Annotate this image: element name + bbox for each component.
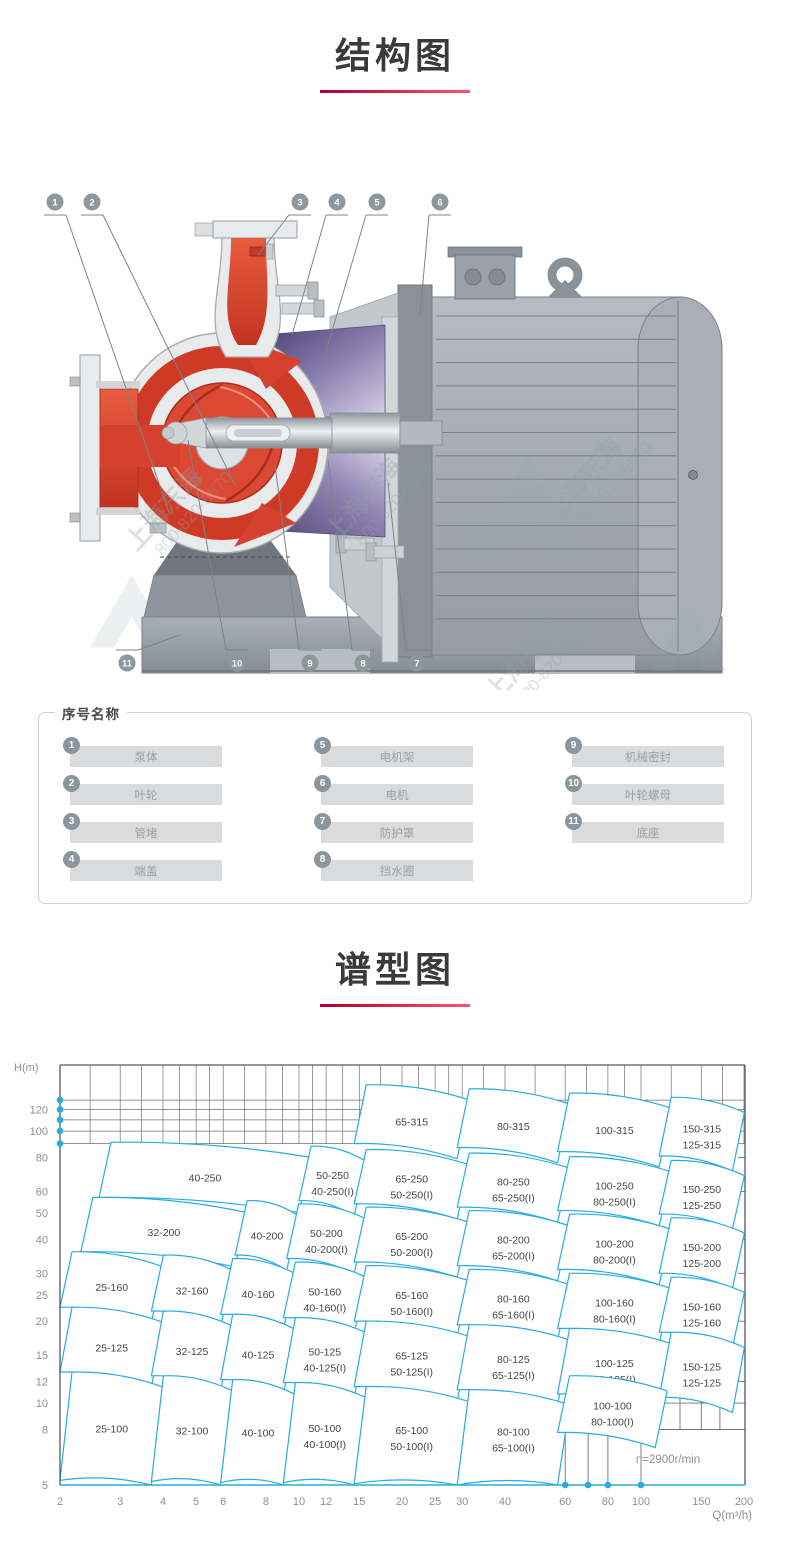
structure-title: 结构图 <box>0 34 790 77</box>
pump-model-label: 100-125 <box>595 1358 634 1370</box>
pump-model-label: 65-160 <box>395 1290 428 1302</box>
part-item: 1泵体 <box>63 737 225 767</box>
spectrum-title: 谱型图 <box>0 948 790 991</box>
parts-column: 5电机架6电机7防护罩8挡水圈 <box>314 737 476 889</box>
part-item: 11底座 <box>565 813 727 843</box>
pump-model-label: 100-160 <box>595 1298 634 1310</box>
pump-model-label: 65-200(I) <box>492 1251 535 1263</box>
axis-dot <box>57 1117 64 1124</box>
part-item: 3管堵 <box>63 813 225 843</box>
pump-model-label: 80-250(I) <box>593 1197 636 1209</box>
y-tick-label: 120 <box>30 1105 48 1117</box>
pump-model-label: 65-100 <box>395 1425 428 1437</box>
parts-legend-title: 序号名称 <box>55 703 127 723</box>
y-tick-label: 30 <box>36 1269 48 1281</box>
part-item: 5电机架 <box>314 737 476 767</box>
pump-model-label: 40-125(I) <box>303 1363 346 1375</box>
pump-model-label: 50-200 <box>310 1228 343 1240</box>
y-tick-label: 15 <box>36 1351 48 1363</box>
spectrum-section-header: 谱型图 <box>0 948 790 1007</box>
x-tick-label: 5 <box>193 1496 199 1508</box>
y-tick-label: 5 <box>42 1480 48 1492</box>
callout-number: 5 <box>374 198 380 209</box>
terminal-box <box>455 255 515 299</box>
part-name-label: 机械密封 <box>572 746 724 767</box>
pump-model-label: 50-100(I) <box>390 1441 433 1453</box>
part-name-label: 叶轮螺母 <box>572 784 724 805</box>
pump-model-label: 125-125 <box>683 1378 722 1390</box>
axis-dot <box>605 1482 612 1489</box>
parts-grid: 1泵体2叶轮3管堵4端盖5电机架6电机7防护罩8挡水圈9机械密封10叶轮螺母11… <box>63 737 727 889</box>
part-name-label: 端盖 <box>70 860 222 881</box>
part-name-label: 底座 <box>572 822 724 843</box>
pump-model-label: 125-315 <box>683 1140 722 1152</box>
speed-annotation: n=2900r/min <box>636 1454 700 1466</box>
pump-model-label: 50-125(I) <box>390 1367 433 1379</box>
chart-regions: 65-31580-315100-315150-315125-31540-2505… <box>60 1085 744 1485</box>
pump-model-label: 65-100(I) <box>492 1443 535 1455</box>
pump-model-label: 40-200(I) <box>305 1244 348 1256</box>
callout-number: 8 <box>360 659 365 670</box>
pump-model-label: 40-160 <box>242 1289 275 1301</box>
pump-model-label: 40-100(I) <box>303 1439 346 1451</box>
callout-number: 6 <box>437 198 442 209</box>
pump-model-label: 50-160(I) <box>390 1306 433 1318</box>
x-tick-label: 10 <box>293 1496 305 1508</box>
pump-model-label: 65-250 <box>395 1174 428 1186</box>
pump-model-label: 150-160 <box>683 1302 722 1314</box>
axis-dot <box>638 1482 645 1489</box>
pump-model-label: 80-125 <box>497 1354 530 1366</box>
part-name-label: 电机 <box>321 784 473 805</box>
x-tick-label: 20 <box>396 1496 408 1508</box>
pump-model-label: 50-250 <box>316 1170 349 1182</box>
pump-model-label: 150-200 <box>683 1242 722 1254</box>
pump-model-label: 150-125 <box>683 1362 722 1374</box>
pump-model-label: 80-100(I) <box>591 1417 634 1429</box>
x-tick-label: 30 <box>456 1496 468 1508</box>
pump-model-label: 65-160(I) <box>492 1310 535 1322</box>
part-item: 2叶轮 <box>63 775 225 805</box>
x-tick-label: 200 <box>735 1496 753 1508</box>
y-tick-label: 50 <box>36 1208 48 1220</box>
pump-model-label: 80-160 <box>497 1294 530 1306</box>
part-item: 9机械密封 <box>565 737 727 767</box>
pump-model-label: 100-250 <box>595 1181 634 1193</box>
x-tick-label: 150 <box>692 1496 710 1508</box>
pump-model-label: 25-125 <box>95 1343 128 1355</box>
callout-number: 3 <box>297 198 302 209</box>
pump-model-label: 50-125 <box>308 1347 341 1359</box>
pump-model-label: 80-100 <box>497 1427 530 1439</box>
title-underline <box>320 90 470 93</box>
pump-model-label: 40-250(I) <box>311 1186 354 1198</box>
y-tick-label: 25 <box>36 1290 48 1302</box>
callout-number: 10 <box>232 659 243 670</box>
part-item: 8挡水圈 <box>314 851 476 881</box>
product-page: 结构图 <box>0 0 790 1545</box>
pump-model-label: 65-200 <box>395 1232 428 1244</box>
pump-model-label: 65-315 <box>395 1117 428 1129</box>
lifting-eye-icon <box>552 262 578 288</box>
pump-model-label: 50-200(I) <box>390 1248 433 1260</box>
callout-number: 2 <box>89 198 94 209</box>
callout-number: 9 <box>307 659 312 670</box>
y-tick-label: 60 <box>36 1187 48 1199</box>
y-tick-label: 8 <box>42 1425 48 1437</box>
motor <box>398 247 722 657</box>
x-tick-label: 12 <box>320 1496 332 1508</box>
y-axis-title: H(m) <box>14 1062 38 1074</box>
title-underline <box>320 1004 470 1007</box>
callout-number: 1 <box>52 198 58 209</box>
parts-column: 1泵体2叶轮3管堵4端盖 <box>63 737 225 889</box>
type-selection-chart: 65-31580-315100-315150-315125-31540-2505… <box>0 1055 790 1545</box>
pump-model-label: 50-250(I) <box>390 1190 433 1202</box>
pump-model-label: 50-160 <box>308 1287 341 1299</box>
pump-model-label: 80-200(I) <box>593 1255 636 1267</box>
x-tick-label: 15 <box>353 1496 365 1508</box>
part-item: 4端盖 <box>63 851 225 881</box>
y-tick-label: 80 <box>36 1153 48 1165</box>
parts-legend-panel: 序号名称 1泵体2叶轮3管堵4端盖5电机架6电机7防护罩8挡水圈9机械密封10叶… <box>38 712 752 904</box>
pump-model-label: 32-160 <box>176 1286 209 1298</box>
pump-model-label: 32-200 <box>148 1228 181 1240</box>
x-tick-label: 3 <box>117 1496 123 1508</box>
pump-model-label: 100-100 <box>593 1401 632 1413</box>
x-axis-title: Q(m³/h) <box>712 1510 752 1522</box>
pump-model-label: 40-100 <box>242 1428 275 1440</box>
part-item: 6电机 <box>314 775 476 805</box>
y-tick-label: 100 <box>30 1126 48 1138</box>
x-tick-label: 6 <box>220 1496 226 1508</box>
y-tick-label: 12 <box>36 1377 48 1389</box>
x-tick-label: 80 <box>602 1496 614 1508</box>
pump-model-label: 40-160(I) <box>303 1303 346 1315</box>
pump-model-label: 40-250 <box>189 1173 222 1185</box>
callout-number: 11 <box>122 659 133 670</box>
part-item: 10叶轮螺母 <box>565 775 727 805</box>
pump-model-label: 125-250 <box>683 1200 722 1212</box>
pump-structure-diagram: 上海东海 800-820-6570 上海东海 800-820-6570 上海东海… <box>30 185 760 690</box>
x-tick-label: 40 <box>499 1496 511 1508</box>
x-tick-label: 60 <box>559 1496 571 1508</box>
axis-dot <box>585 1482 592 1489</box>
axis-dot <box>57 1097 64 1104</box>
part-name-label: 防护罩 <box>321 822 473 843</box>
part-name-label: 电机架 <box>321 746 473 767</box>
pump-model-label: 50-100 <box>308 1423 341 1435</box>
axis-dot <box>562 1482 569 1489</box>
pump-model-label: 125-160 <box>683 1318 722 1330</box>
pump-model-label: 65-125(I) <box>492 1370 535 1382</box>
shaft <box>162 413 442 453</box>
pump-model-label: 65-250(I) <box>492 1193 535 1205</box>
part-name-label: 管堵 <box>70 822 222 843</box>
part-name-label: 叶轮 <box>70 784 222 805</box>
callout-number: 7 <box>414 659 419 670</box>
part-name-label: 挡水圈 <box>321 860 473 881</box>
x-tick-label: 8 <box>263 1496 269 1508</box>
x-tick-label: 25 <box>429 1496 441 1508</box>
pump-model-label: 32-125 <box>176 1346 209 1358</box>
pump-model-label: 150-315 <box>683 1124 722 1136</box>
pump-model-label: 100-200 <box>595 1239 634 1251</box>
x-tick-label: 2 <box>57 1496 63 1508</box>
axis-dot <box>57 1128 64 1135</box>
x-tick-label: 100 <box>632 1496 650 1508</box>
y-tick-label: 10 <box>36 1398 48 1410</box>
axis-dot <box>57 1107 64 1114</box>
pump-model-label: 25-160 <box>95 1282 128 1294</box>
pump-model-label: 80-200 <box>497 1235 530 1247</box>
callout-number: 4 <box>334 198 340 209</box>
pump-model-label: 25-100 <box>95 1424 128 1436</box>
pump-model-label: 65-125 <box>395 1351 428 1363</box>
parts-column: 9机械密封10叶轮螺母11底座 <box>565 737 727 889</box>
x-tick-label: 4 <box>160 1496 166 1508</box>
part-name-label: 泵体 <box>70 746 222 767</box>
pump-model-label: 32-100 <box>176 1426 209 1438</box>
pump-model-label: 80-315 <box>497 1121 530 1133</box>
structure-section-header: 结构图 <box>0 0 790 93</box>
y-tick-label: 40 <box>36 1235 48 1247</box>
pump-model-label: 125-200 <box>683 1258 722 1270</box>
pump-model-label: 100-315 <box>595 1125 634 1137</box>
part-item: 7防护罩 <box>314 813 476 843</box>
pump-model-label: 80-160(I) <box>593 1314 636 1326</box>
pump-model-label: 40-200 <box>251 1231 284 1243</box>
end-cover-bolts <box>276 282 324 317</box>
pump-model-label: 150-250 <box>683 1184 722 1196</box>
pump-model-label: 80-250 <box>497 1177 530 1189</box>
axis-dot <box>57 1141 64 1148</box>
y-tick-label: 20 <box>36 1317 48 1329</box>
pump-model-label: 40-125 <box>242 1350 275 1362</box>
